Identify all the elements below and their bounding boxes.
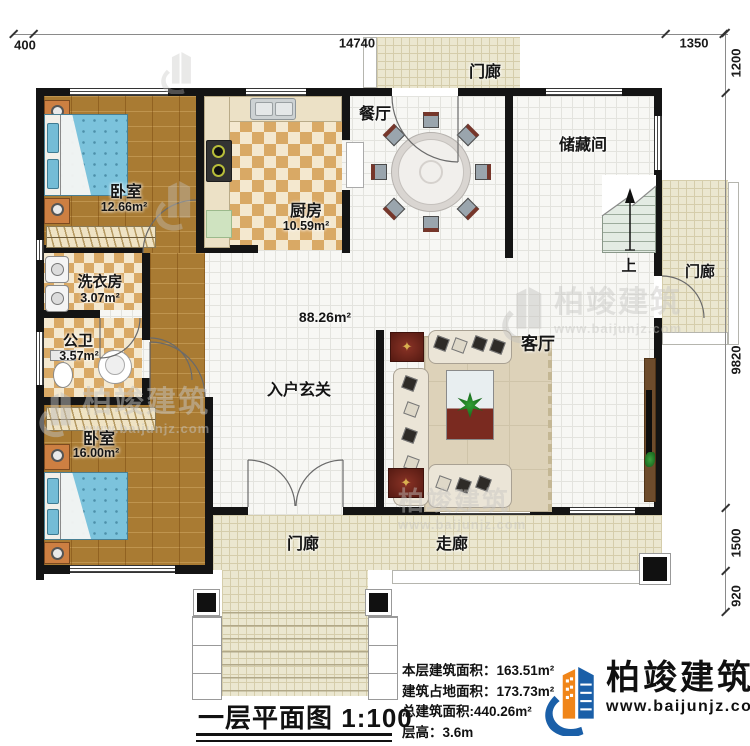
room-area-bedroom1: 12.66m² [101,200,148,214]
plan-title-text: 一层平面图 [198,703,333,733]
room-label-storage: 储藏间 [559,131,607,155]
burner-icon [212,164,225,177]
room-label-laundry: 洗衣房 [77,271,122,292]
burner-icon [212,145,225,158]
chair [475,164,491,180]
wall-segment [342,190,350,253]
room-area-hall: 88.26m² [299,309,351,325]
dim-right-3: 920 [729,585,744,607]
wall-segment [142,310,150,340]
wall-segment [36,565,70,574]
stairs-up-label: 上 [621,255,636,276]
pillow [47,159,59,189]
column [366,590,391,615]
window [36,332,44,385]
company-name: 柏竣建筑 [606,660,750,697]
pillow [47,509,59,535]
stove [206,140,232,182]
info-value: 440.26m² [474,704,532,719]
room-label-bedroom1: 卧室 [110,178,142,202]
wall-segment [376,330,384,507]
column [640,554,670,584]
dining-table-center [419,160,443,184]
steps-left [192,616,222,700]
window [36,240,44,260]
bed-sheet [61,473,91,539]
steps-right [368,616,398,700]
wall-segment [654,88,662,116]
chair [423,216,439,232]
dim-top-1: 14740 [339,36,375,51]
dim-right-2: 1500 [729,529,744,558]
sink-bowl [105,355,125,375]
cushion [475,475,492,492]
lamp-icon [51,547,64,560]
wall-segment [306,88,392,96]
info-label: 总建筑面积: [402,704,474,719]
info-row: 层高：3.6m [402,723,554,744]
cushion [433,335,450,352]
small-plant [645,452,655,467]
room-area-bath: 3.57m² [59,349,99,363]
cushion [435,475,452,492]
wall-segment [36,260,44,332]
washer-door-icon [51,263,64,276]
bathroom-sink [98,350,132,384]
room-label-porch-top: 门廊 [469,58,501,82]
lamp-icon [51,449,64,462]
building-info: 本层建筑面积：163.51m² 建筑占地面积：173.73m² 总建筑面积:44… [402,661,554,743]
room-label-foyer: 入户玄关 [267,376,331,400]
chair [423,112,439,128]
porch-right-edge-side [728,182,739,345]
wall-segment [196,96,204,253]
dimension-line-right [725,33,726,612]
room-label-dining: 餐厅 [359,100,391,124]
room-label-porch-right: 门廊 [685,261,715,282]
nightstand [44,444,70,470]
wall-segment [142,253,150,310]
window [246,88,306,96]
room-label-kitchen: 厨房 [290,197,322,221]
window [546,88,622,96]
wall-segment [458,88,546,96]
wall-segment [505,96,513,258]
toilet [53,362,73,388]
company-logo-icon [540,660,602,736]
nightstand [44,542,70,564]
cushion [489,338,506,355]
window [570,507,635,515]
window [70,565,175,573]
wardrobe-rail [47,237,155,238]
washer-door-icon [51,292,64,305]
room-area-laundry: 3.07m² [80,291,120,305]
room-area-bedroom2: 16.00m² [73,446,120,460]
tv [646,390,652,456]
cushion [455,477,472,494]
sink-basin [255,102,273,116]
info-value: 3.6m [443,725,474,740]
bed-bedroom2 [44,472,128,540]
pillow [47,478,59,504]
info-row: 建筑占地面积：173.73m² [402,682,554,703]
dim-top-0: 400 [14,38,36,53]
chair [371,164,387,180]
room-label-porch-bottom: 门廊 [287,530,319,554]
room-label-living: 客厅 [521,330,555,355]
dim-right-0: 1200 [729,49,744,78]
cushion [401,427,418,444]
pillow [47,123,59,153]
wall-segment [342,96,350,140]
room-label-corridor: 走廊 [436,530,468,554]
bed-sheet [61,115,91,195]
wardrobe [46,226,156,248]
wardrobe-rail [47,419,155,420]
kitchen-sink [250,98,296,120]
room-label-bath: 公卫 [63,330,93,351]
wall-segment [635,507,662,515]
company-logo: 柏竣建筑 www.baijunjz.com [540,660,750,736]
corridor-platform-edge [392,570,640,584]
kitchen-mat [206,210,232,238]
info-row: 本层建筑面积：163.51m² [402,661,554,682]
side-table: ✦ [390,332,424,362]
nightstand [44,198,70,224]
lamp-icon [51,203,64,216]
floor-plan-sheet: ✦ ✦ [0,0,750,746]
window [70,88,168,96]
cushion [401,375,418,392]
company-website: www.baijunjz.com [606,698,750,716]
porch-step-treads [222,612,368,696]
plan-title: 一层平面图 1:100 [198,698,413,735]
sofa-bottom [428,464,512,508]
floor-nook [150,253,205,397]
wall-segment [205,397,213,573]
sofa-top [428,330,512,364]
wall-segment [36,385,44,580]
floor-porch-right [662,180,728,332]
info-label: 本层建筑面积： [402,663,497,678]
cushion [403,401,420,418]
wall-segment [36,397,150,405]
side-table: ✦ [388,468,424,498]
wall-segment [36,88,44,240]
dim-top-2: 1350 [680,36,709,51]
info-row: 总建筑面积:440.26m² [402,702,554,723]
wall-segment [168,88,246,96]
info-label: 层高： [402,725,443,740]
window [654,116,662,170]
dim-right-1: 9820 [729,346,744,375]
title-underline [196,733,392,736]
porch-right-edge-bottom [662,332,728,345]
washing-machine [45,285,69,312]
column [194,590,219,615]
cushion [471,335,488,352]
fridge-niche [346,142,364,188]
room-area-kitchen: 10.59m² [283,219,330,233]
cushion [451,337,468,354]
title-underline [196,740,392,742]
stairs [602,186,656,253]
info-label: 建筑占地面积： [402,684,497,699]
washing-machine [45,256,69,283]
sink-basin [275,102,293,116]
